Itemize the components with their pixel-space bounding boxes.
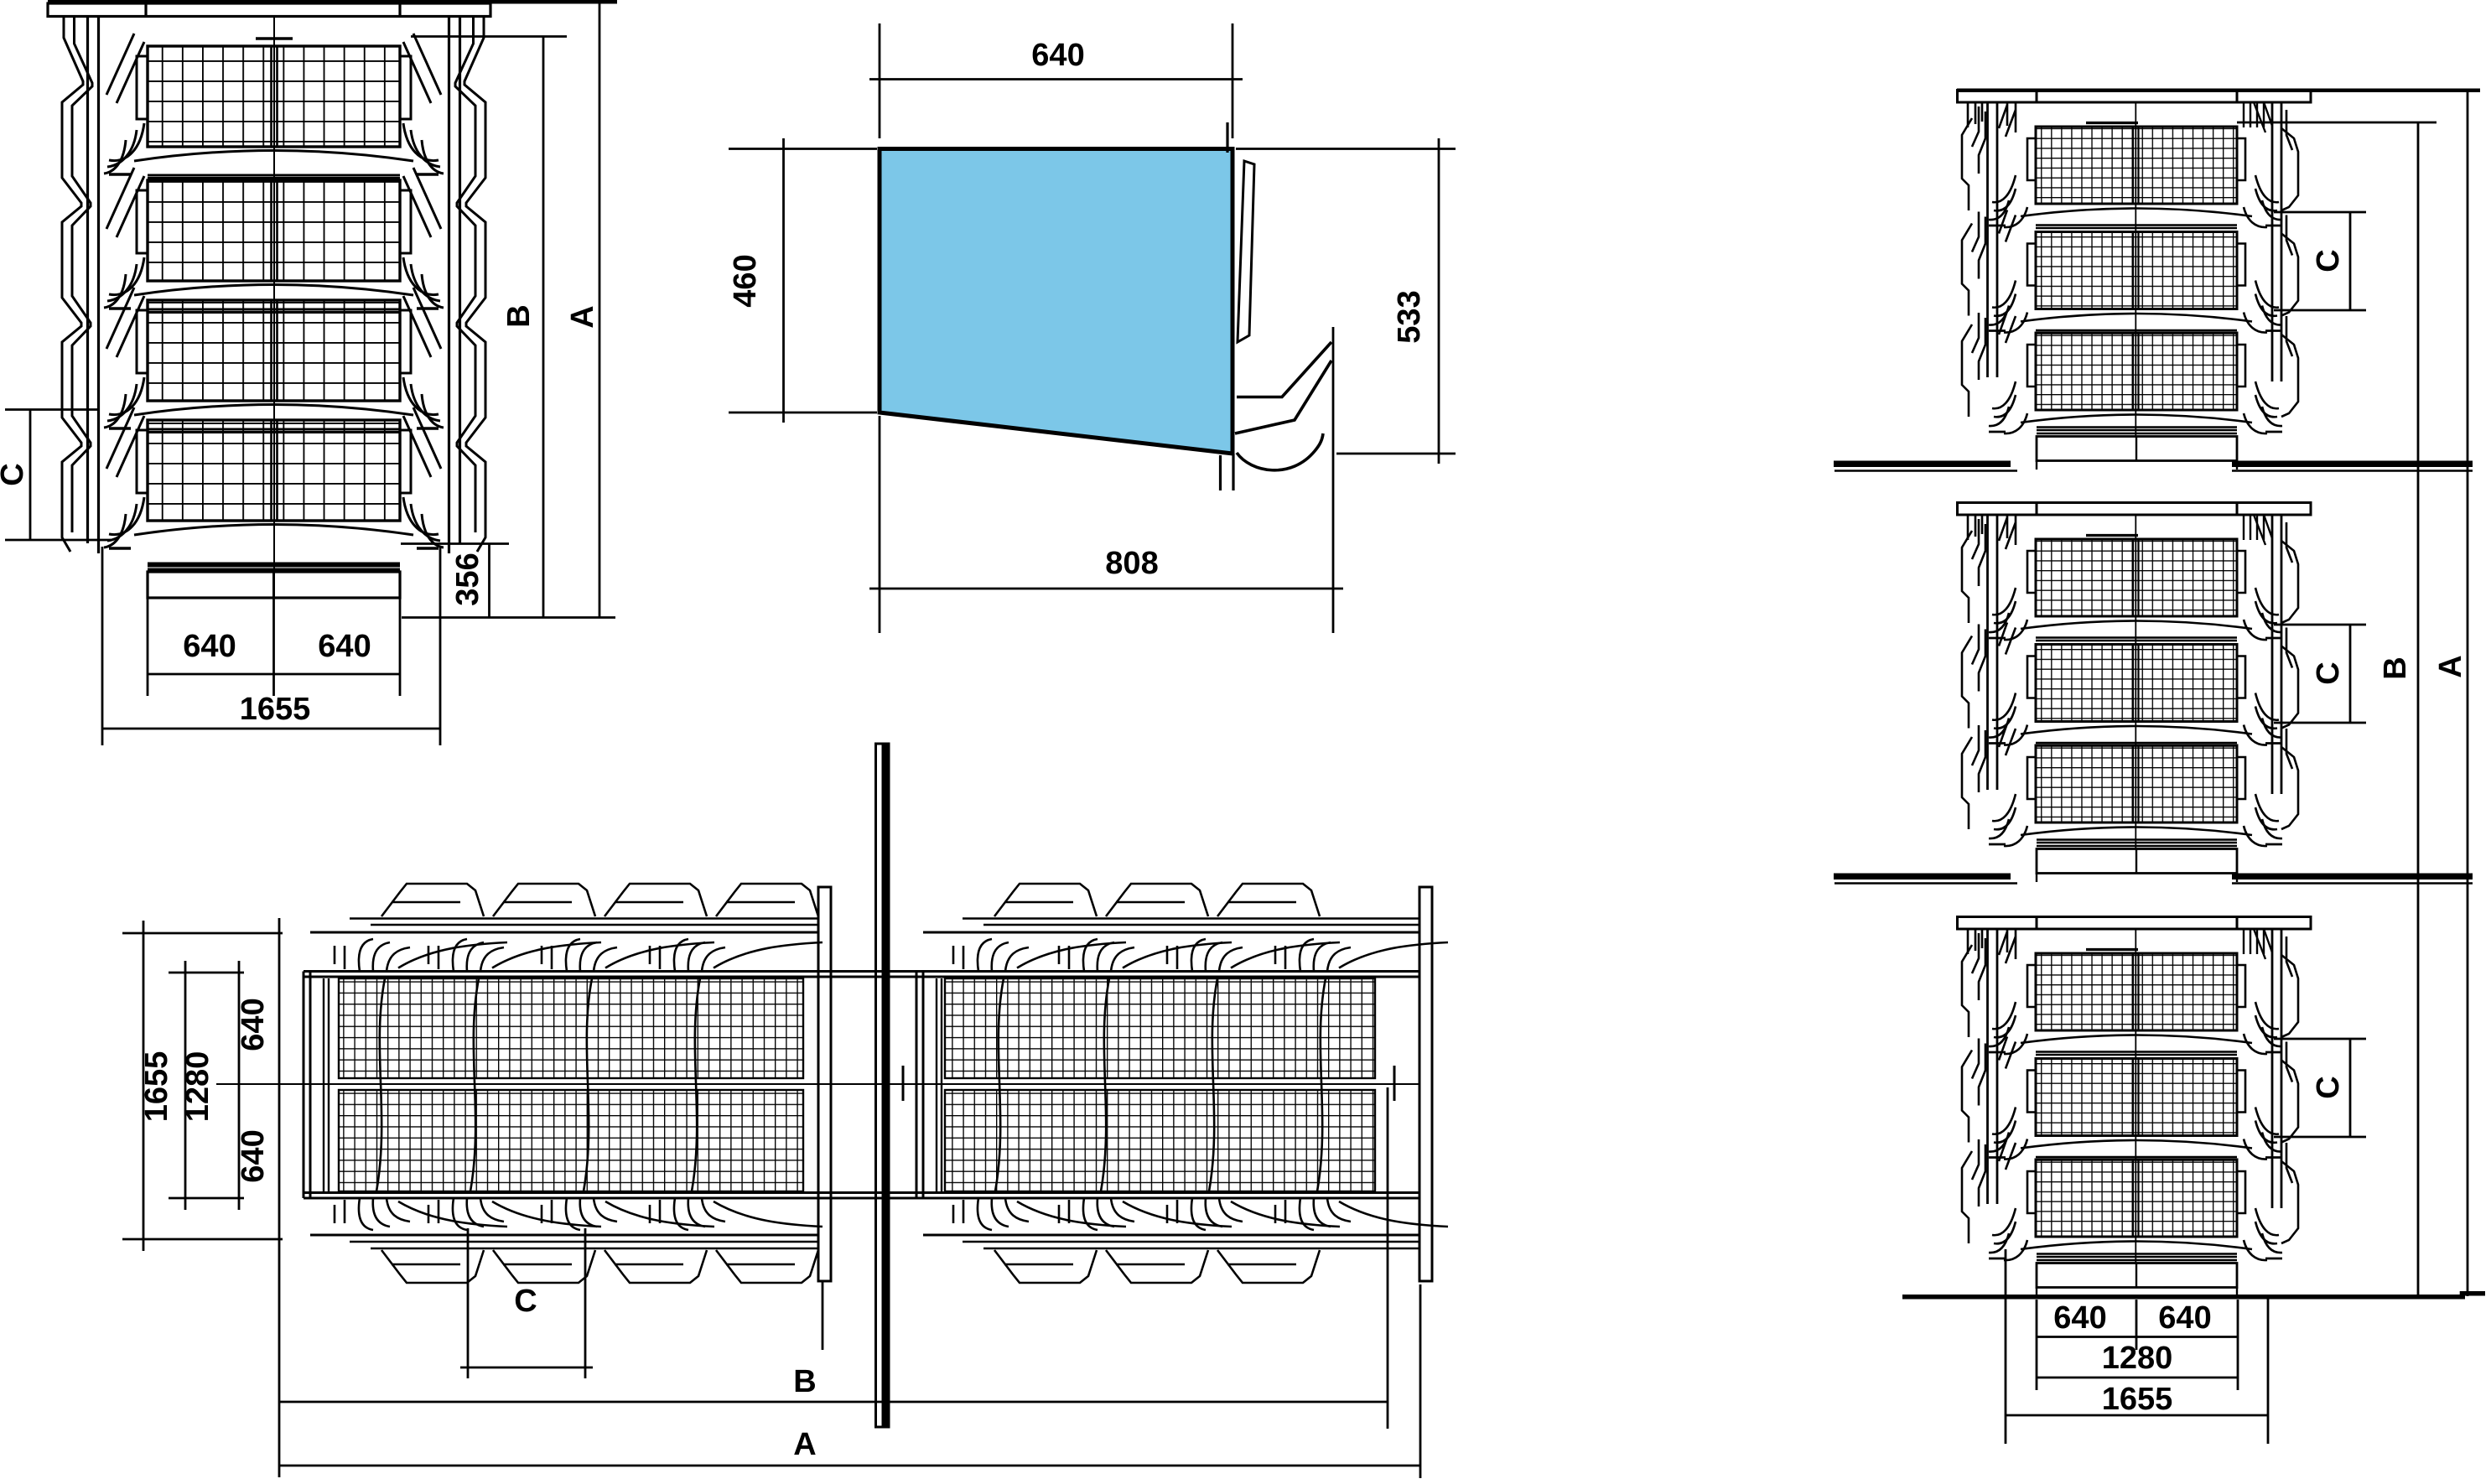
svg-text:1280: 1280 xyxy=(180,1051,215,1123)
svg-text:640: 640 xyxy=(318,629,371,664)
svg-text:C: C xyxy=(514,1284,537,1319)
svg-text:356: 356 xyxy=(450,553,485,605)
svg-text:640: 640 xyxy=(236,1129,271,1182)
svg-text:B: B xyxy=(501,304,537,327)
svg-text:640: 640 xyxy=(2053,1300,2106,1336)
svg-text:640: 640 xyxy=(2158,1300,2211,1336)
svg-text:A: A xyxy=(793,1427,816,1462)
svg-text:1280: 1280 xyxy=(2102,1341,2173,1376)
svg-text:A: A xyxy=(565,305,600,328)
svg-text:533: 533 xyxy=(1392,290,1427,343)
svg-text:808: 808 xyxy=(1105,546,1158,581)
svg-text:C: C xyxy=(2311,662,2346,684)
svg-text:B: B xyxy=(2378,656,2413,679)
svg-text:640: 640 xyxy=(183,629,236,664)
svg-text:1655: 1655 xyxy=(139,1051,174,1123)
svg-text:640: 640 xyxy=(236,998,271,1051)
svg-text:C: C xyxy=(0,463,30,485)
svg-text:1655: 1655 xyxy=(2102,1382,2173,1417)
svg-text:640: 640 xyxy=(1031,38,1084,73)
svg-text:460: 460 xyxy=(728,254,763,307)
svg-text:B: B xyxy=(793,1364,816,1399)
svg-text:1655: 1655 xyxy=(240,692,311,727)
svg-text:A: A xyxy=(2433,655,2468,677)
svg-text:C: C xyxy=(2311,1076,2346,1098)
svg-text:C: C xyxy=(2311,249,2346,272)
